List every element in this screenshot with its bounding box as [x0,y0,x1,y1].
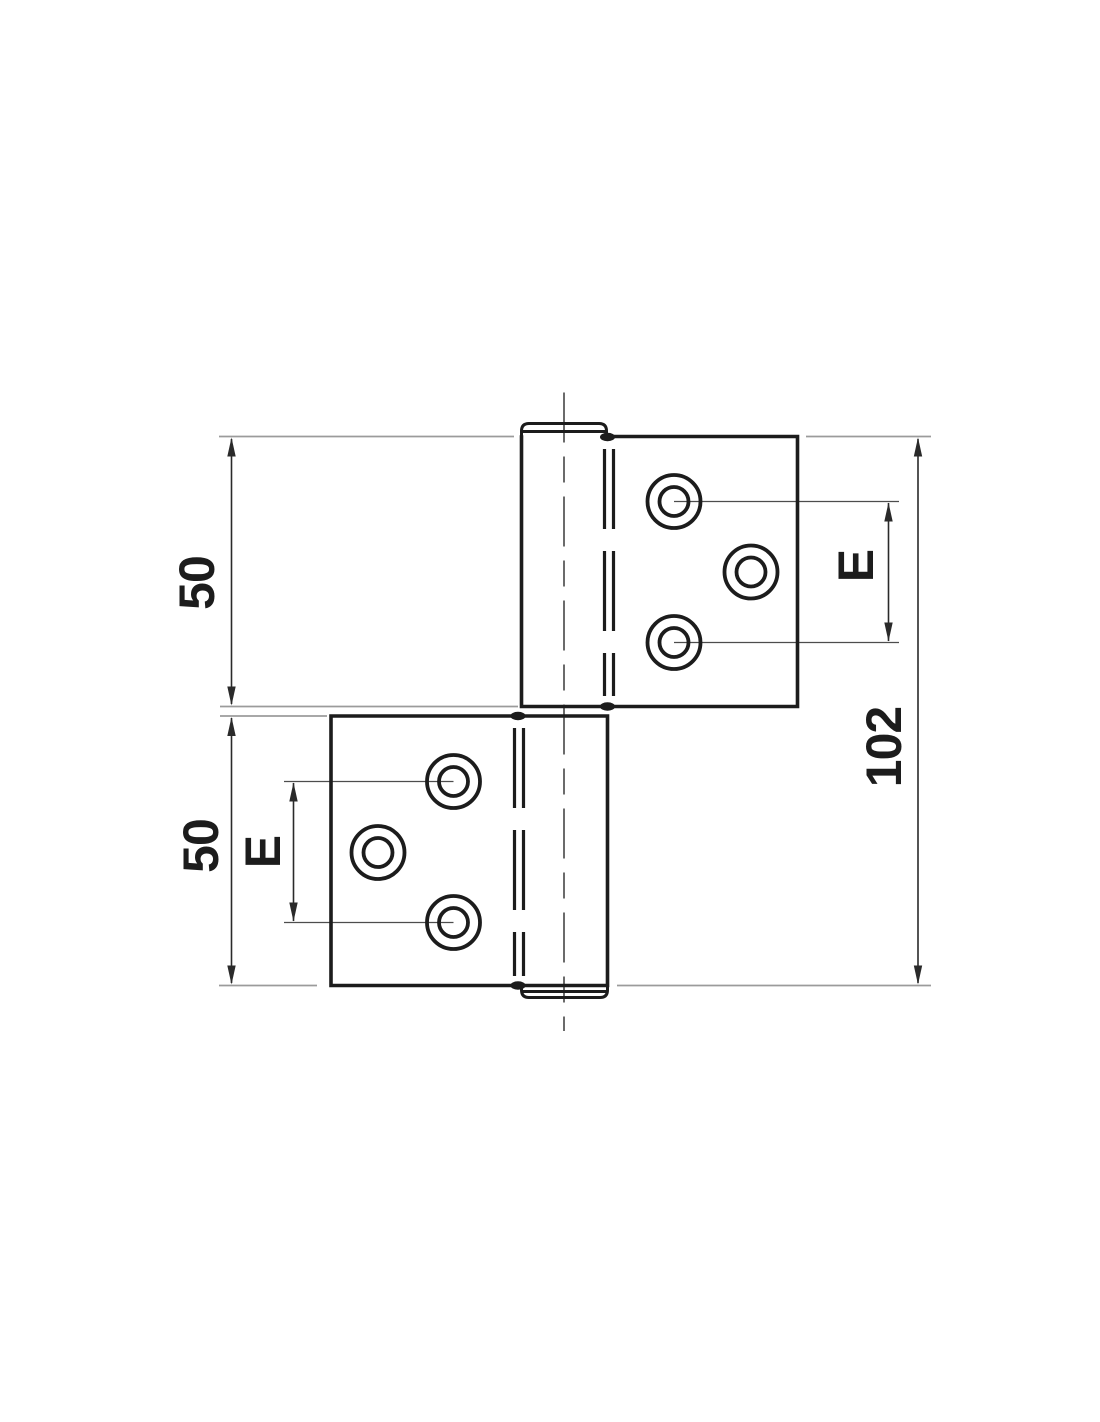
dimension-label-102: 102 [856,707,912,787]
junction-dot [511,712,526,720]
arrowhead-up [227,717,235,736]
dimension-upper-leaf-height: 50 [169,438,236,706]
arrowhead-down [227,966,235,985]
dimension-lower-leaf-height: 50 [173,717,236,985]
dimension-label-upper-E: E [828,550,884,582]
hole-leader-lines [284,502,899,923]
arrowhead-up [884,503,892,522]
dimension-label-lower-E: E [235,836,291,868]
arrowhead-up [227,438,235,457]
upper-leaf [522,424,798,707]
screw-hole-inner [737,558,766,587]
junction-dot [600,702,615,710]
junction-dot [600,433,615,441]
screw-hole-outer [352,826,405,879]
junction-dot [511,981,526,989]
arrowhead-up [914,438,922,457]
dimension-label-lower-50: 50 [173,819,229,873]
arrowhead-down [914,966,922,985]
hinge-technical-drawing: 50 50 102 E E [0,0,1100,1422]
lower-leaf-screw-holes [352,755,481,949]
arrowhead-up [289,783,297,802]
lower-leaf [331,716,608,998]
arrowhead-down [227,687,235,706]
screw-hole-inner [364,838,393,867]
junction-dots [511,433,616,990]
upper-leaf-screw-holes [648,475,778,669]
arrowhead-down [884,623,892,642]
arrowhead-down [289,903,297,922]
dimension-lower-hole-spacing: E [235,783,298,922]
extension-lines [219,437,931,986]
screw-hole-outer [725,546,778,599]
dimension-label-upper-50: 50 [169,556,225,610]
dimension-upper-hole-spacing: E [828,503,893,642]
hinge-drawing-page: 50 50 102 E E [0,0,1100,1422]
